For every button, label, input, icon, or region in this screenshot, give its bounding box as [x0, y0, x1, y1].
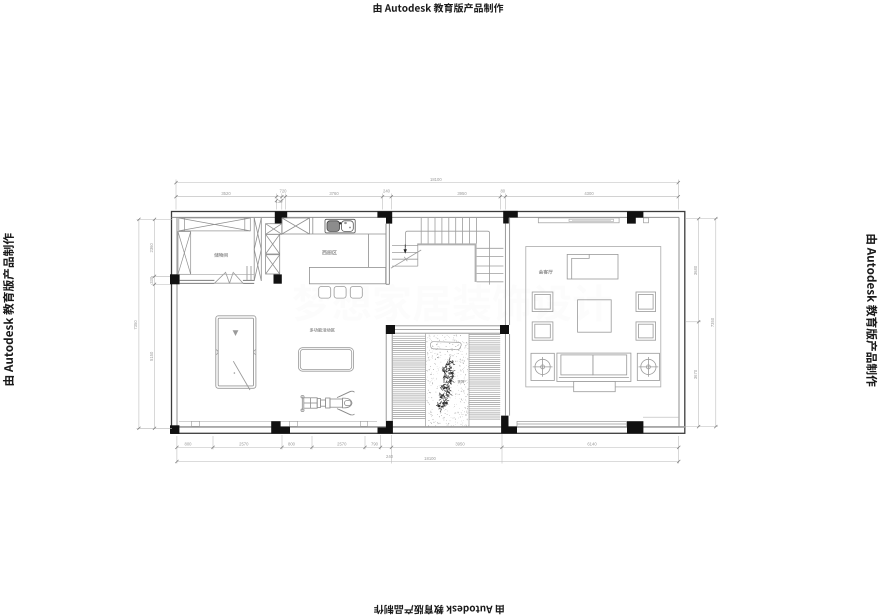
svg-text:2360: 2360	[149, 242, 154, 252]
svg-text:720: 720	[280, 188, 288, 193]
svg-text:790: 790	[371, 442, 379, 447]
svg-text:6140: 6140	[587, 442, 597, 447]
svg-text:130: 130	[276, 199, 284, 204]
svg-text:4300: 4300	[584, 191, 594, 196]
svg-text:3950: 3950	[457, 191, 467, 196]
svg-text:800: 800	[185, 442, 193, 447]
svg-text:800: 800	[288, 442, 296, 447]
svg-text:2570: 2570	[239, 442, 249, 447]
svg-text:330: 330	[149, 276, 154, 284]
svg-text:18100: 18100	[424, 456, 436, 461]
svg-text:240: 240	[386, 454, 394, 459]
svg-text:7350: 7350	[710, 317, 715, 327]
svg-text:3520: 3520	[221, 191, 231, 196]
svg-text:80: 80	[500, 188, 505, 193]
svg-text:3950: 3950	[455, 442, 465, 447]
svg-text:5150: 5150	[149, 351, 154, 361]
svg-text:3680: 3680	[693, 265, 698, 275]
svg-text:3760: 3760	[329, 191, 339, 196]
svg-text:240: 240	[383, 188, 391, 193]
svg-text:18100: 18100	[430, 177, 442, 182]
svg-text:3670: 3670	[693, 369, 698, 379]
svg-text:7350: 7350	[133, 320, 138, 330]
svg-text:2570: 2570	[337, 442, 347, 447]
